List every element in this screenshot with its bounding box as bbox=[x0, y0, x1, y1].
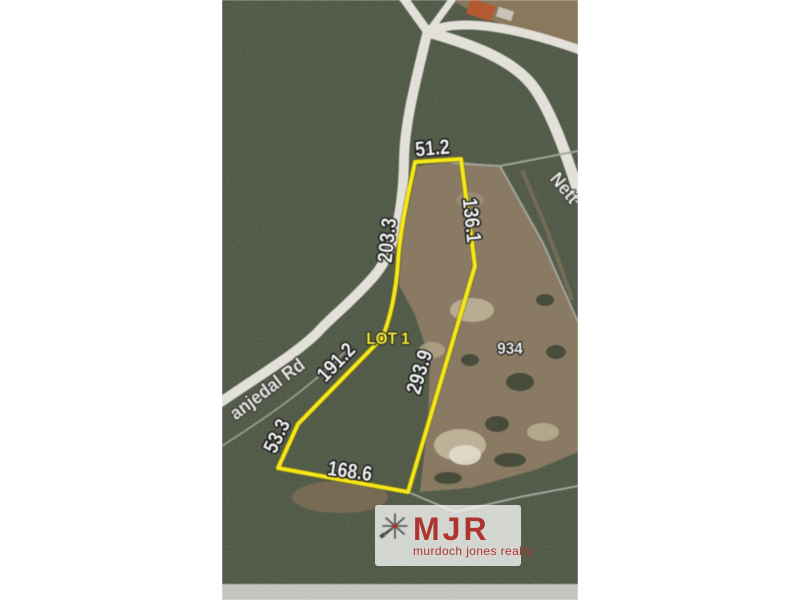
lot-number-label: LOT 1 bbox=[366, 329, 409, 348]
listing-map-page: 51.2 136.1 203.3 191.2 53.3 168.6 293.9 … bbox=[0, 0, 800, 600]
windmill-icon bbox=[379, 512, 411, 552]
watermark-initials: MJR bbox=[413, 514, 490, 544]
watermark-text: MJR murdoch jones realty bbox=[413, 514, 532, 558]
watermark-tagline: murdoch jones realty bbox=[413, 545, 532, 558]
neighbor-lot-number: 934 bbox=[497, 339, 523, 358]
measurement-51-2: 51.2 bbox=[414, 135, 451, 162]
measurement-203-3: 203.3 bbox=[373, 217, 401, 264]
realty-watermark: MJR murdoch jones realty bbox=[375, 505, 521, 566]
measurement-136-1: 136.1 bbox=[457, 197, 485, 244]
bottom-fade-strip bbox=[222, 584, 578, 600]
aerial-map: 51.2 136.1 203.3 191.2 53.3 168.6 293.9 … bbox=[222, 0, 578, 600]
